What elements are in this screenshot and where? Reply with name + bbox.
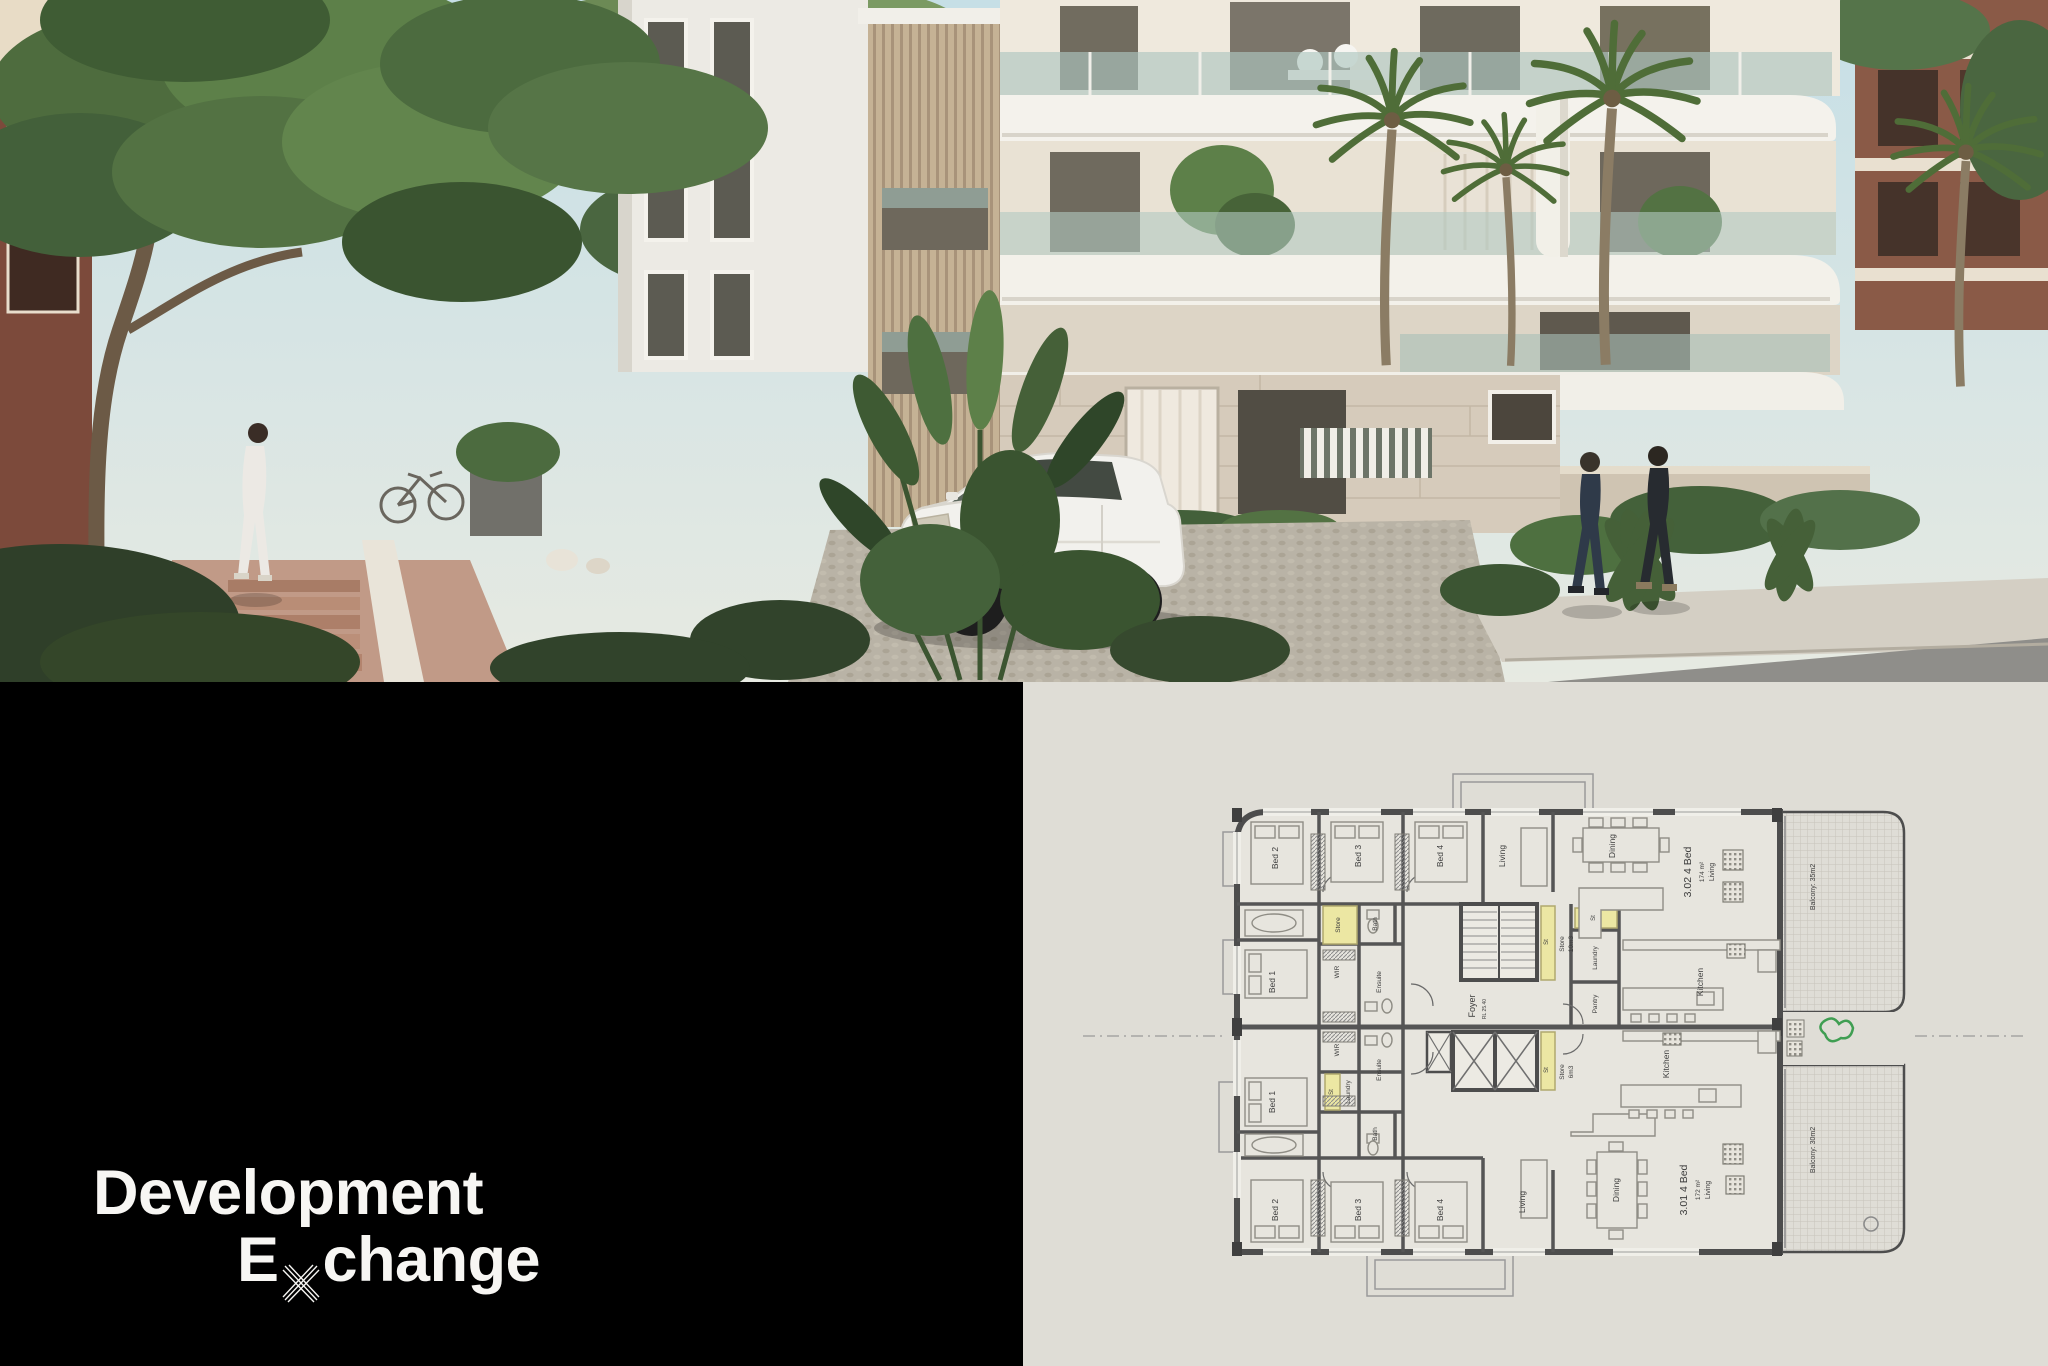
- room-label: Laundry: [1345, 1080, 1352, 1104]
- white-slat-fence: [1300, 428, 1432, 478]
- room-label: St: [1544, 1067, 1550, 1073]
- room-label: Bed 1: [1267, 971, 1277, 993]
- unit-zone: Living: [1709, 863, 1716, 881]
- room-label: Store: [1559, 936, 1566, 952]
- floorplan-panel: Bed 2 Bed 3 Bed 4 Living Dining Kitchen …: [1023, 682, 2048, 1366]
- logo-line2-post: change: [323, 1229, 541, 1292]
- room-label: Pantry: [1592, 994, 1599, 1014]
- room-label: Bed 3: [1353, 1199, 1363, 1221]
- unit-area: 174 m²: [1699, 861, 1706, 882]
- brochure-page: Development Echange: [0, 0, 2048, 1366]
- room-label: Bed 2: [1270, 847, 1280, 869]
- balcony-302: [1780, 812, 1904, 1012]
- room-label: 10m3: [1568, 935, 1575, 952]
- room-label: St: [1544, 939, 1550, 945]
- stylized-x-icon: [281, 1252, 321, 1294]
- room-label: Store: [1559, 1064, 1566, 1080]
- hero-render-svg: [0, 0, 2048, 682]
- unit-zone: Living: [1705, 1181, 1712, 1199]
- room-label: Kitchen: [1661, 1050, 1671, 1079]
- balcony-divider: [1780, 1012, 1904, 1065]
- brand-panel: Development Echange: [0, 682, 1023, 1366]
- room-label: Bath: [1372, 917, 1379, 931]
- logo-line2-pre: E: [237, 1229, 279, 1292]
- room-label: Store: [1335, 917, 1342, 933]
- level-label: RL 25.40: [1482, 999, 1488, 1019]
- room-label: Dining: [1607, 834, 1617, 858]
- room-label: Bed 4: [1435, 845, 1445, 867]
- room-label: Bed 2: [1270, 1199, 1280, 1221]
- room-label: Bed 4: [1435, 1199, 1445, 1221]
- balcony-label: Balcony: 35m2: [1810, 864, 1817, 910]
- room-label: St: [1591, 915, 1597, 921]
- room-label: Living: [1497, 845, 1507, 867]
- hero-render: [0, 0, 2048, 682]
- room-label: Laundry: [1592, 946, 1599, 970]
- room-label: Ensuite: [1376, 1059, 1383, 1081]
- room-label: WIR: [1334, 1043, 1341, 1056]
- room-label: St: [1329, 1089, 1335, 1095]
- balcony-301: [1780, 1065, 1904, 1252]
- room-label: 6m3: [1568, 1065, 1575, 1078]
- balcony-label: Balcony: 30m2: [1810, 1127, 1817, 1173]
- unit-area: 172 m²: [1695, 1179, 1702, 1200]
- room-label: Bath: [1372, 1127, 1379, 1141]
- room-label: WIR: [1334, 965, 1341, 978]
- brand-logo: Development Echange: [93, 1162, 540, 1292]
- logo-line2: Echange: [237, 1229, 540, 1292]
- room-label: Bed 3: [1353, 845, 1363, 867]
- room-label: Bed 1: [1267, 1091, 1277, 1113]
- room-label: Ensuite: [1376, 971, 1383, 993]
- foyer-label: Foyer: [1467, 994, 1477, 1017]
- floorplan-svg: Bed 2 Bed 3 Bed 4 Living Dining Kitchen …: [1023, 682, 2048, 1366]
- logo-line1: Development: [93, 1162, 540, 1225]
- room-label: Dining: [1611, 1178, 1621, 1202]
- room-label: Kitchen: [1695, 968, 1705, 997]
- unit-title: 3.02 4 Bed: [1682, 846, 1694, 897]
- unit-title: 3.01 4 Bed: [1678, 1164, 1690, 1215]
- room-label: Living: [1517, 1191, 1527, 1213]
